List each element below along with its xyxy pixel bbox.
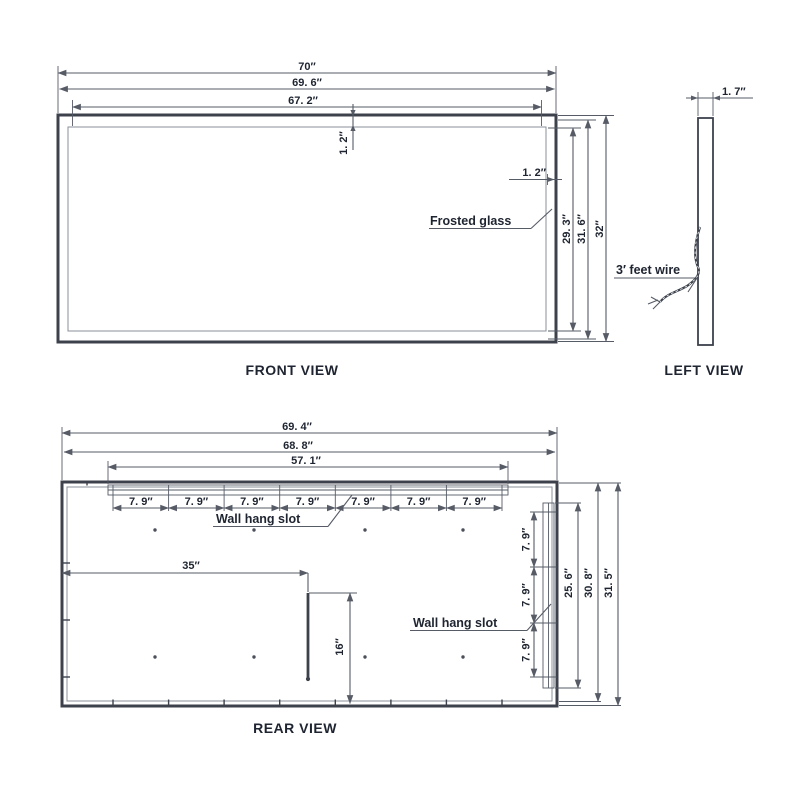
- dim-label-7-9-top-3: 7. 9″: [240, 496, 264, 508]
- front-view: 70″ 69. 6″ 67. 2″ 1. 2″ 1. 2″: [58, 61, 614, 378]
- dim-front-total-height: 32″: [594, 116, 606, 342]
- dim-label-7-9-top-4: 7. 9″: [296, 496, 320, 508]
- right-wall-hang-slot-label: Wall hang slot: [413, 616, 498, 630]
- dim-top-slot-spacing: 7. 9″ 7. 9″ 7. 9″ 7. 9″ 7. 9″ 7. 9″ 7. 9…: [113, 496, 502, 508]
- feet-wire-label: 3′ feet wire: [616, 263, 680, 277]
- rear-outer-frame: [62, 482, 557, 706]
- right-wall-hang-slot-callout: Wall hang slot: [410, 604, 551, 631]
- left-view-title: LEFT VIEW: [664, 362, 743, 378]
- dim-front-frame-width: 69. 6″: [60, 77, 555, 89]
- rear-inner-panel: [67, 487, 552, 701]
- dim-label-29-3: 29. 3″: [561, 213, 573, 243]
- dim-rear-inner-height: 30. 8″: [583, 483, 598, 702]
- dim-label-border-top: 1. 2″: [338, 130, 350, 154]
- top-wall-hang-slot-callout: Wall hang slot: [213, 495, 352, 527]
- top-wall-hang-slot-label: Wall hang slot: [216, 512, 301, 526]
- dim-label-7-9-top-5: 7. 9″: [351, 496, 375, 508]
- dim-label-7-9-right-2: 7. 9″: [521, 582, 533, 606]
- left-view-panel: [698, 118, 713, 345]
- frosted-glass-callout: Frosted glass: [429, 209, 552, 229]
- dim-label-57-1: 57. 1″: [291, 455, 321, 467]
- dim-label-68-8: 68. 8″: [283, 440, 313, 452]
- dim-label-31-5: 31. 5″: [603, 567, 615, 597]
- dim-label-border-right: 1. 2″: [522, 167, 546, 179]
- dim-label-16: 16″: [334, 638, 346, 656]
- dim-label-7-9-top-6: 7. 9″: [407, 496, 431, 508]
- dim-label-7-9-right-1: 7. 9″: [521, 527, 533, 551]
- dim-label-32: 32″: [594, 220, 606, 238]
- dim-label-1-7: 1. 7″: [722, 86, 746, 98]
- rear-view-title: REAR VIEW: [253, 720, 337, 736]
- dim-label-69-6: 69. 6″: [292, 77, 322, 89]
- dim-label-69-4: 69. 4″: [282, 421, 312, 433]
- dim-front-glass-height: 29. 3″: [561, 128, 573, 331]
- dim-rear-total-width: 69. 4″: [62, 421, 557, 433]
- dim-label-7-9-top-1: 7. 9″: [129, 496, 153, 508]
- center-slot: [306, 593, 310, 681]
- dim-label-7-9-top-2: 7. 9″: [185, 496, 209, 508]
- dim-label-25-6: 25. 6″: [563, 567, 575, 597]
- dim-label-7-9-top-7: 7. 9″: [462, 496, 486, 508]
- dim-front-total-width: 70″: [58, 61, 556, 73]
- dim-rear-total-height: 31. 5″: [603, 483, 618, 706]
- dim-label-70: 70″: [298, 61, 316, 73]
- dim-wire-offset: 35″: [62, 560, 308, 592]
- dim-rear-rail-width: 57. 1″: [108, 455, 508, 467]
- dim-front-border-top: 1. 2″: [338, 104, 356, 155]
- technical-drawing-page: 70″ 69. 6″ 67. 2″ 1. 2″ 1. 2″: [0, 0, 800, 800]
- frosted-glass-label: Frosted glass: [430, 214, 511, 228]
- dim-front-glass-width: 67. 2″: [73, 95, 542, 107]
- left-view: 1. 7″ 3′ feet wire LEFT VIEW: [614, 86, 753, 378]
- dim-right-slot-spacing: 7. 9″ 7. 9″ 7. 9″: [521, 512, 535, 677]
- front-view-title: FRONT VIEW: [246, 362, 339, 378]
- mirror-dimension-drawing: 70″ 69. 6″ 67. 2″ 1. 2″ 1. 2″: [0, 0, 800, 800]
- dim-label-31-6: 31. 6″: [576, 213, 588, 243]
- dim-front-border-right: 1. 2″: [509, 167, 562, 185]
- rear-view: 69. 4″ 68. 8″ 57. 1″ 7. 9″ 7. 9″ 7. 9″ 7…: [62, 421, 621, 736]
- dim-wire-slot-length: 16″: [309, 593, 357, 704]
- dim-label-7-9-right-3: 7. 9″: [521, 637, 533, 661]
- dim-rear-inner-width: 68. 8″: [64, 440, 555, 452]
- dim-rear-rail-height: 25. 6″: [563, 503, 578, 688]
- dim-label-67-2: 67. 2″: [288, 95, 318, 107]
- dim-label-30-8: 30. 8″: [583, 567, 595, 597]
- dim-label-35: 35″: [182, 560, 200, 572]
- dim-left-depth: 1. 7″: [686, 86, 753, 116]
- dim-front-frame-height: 31. 6″: [576, 120, 588, 339]
